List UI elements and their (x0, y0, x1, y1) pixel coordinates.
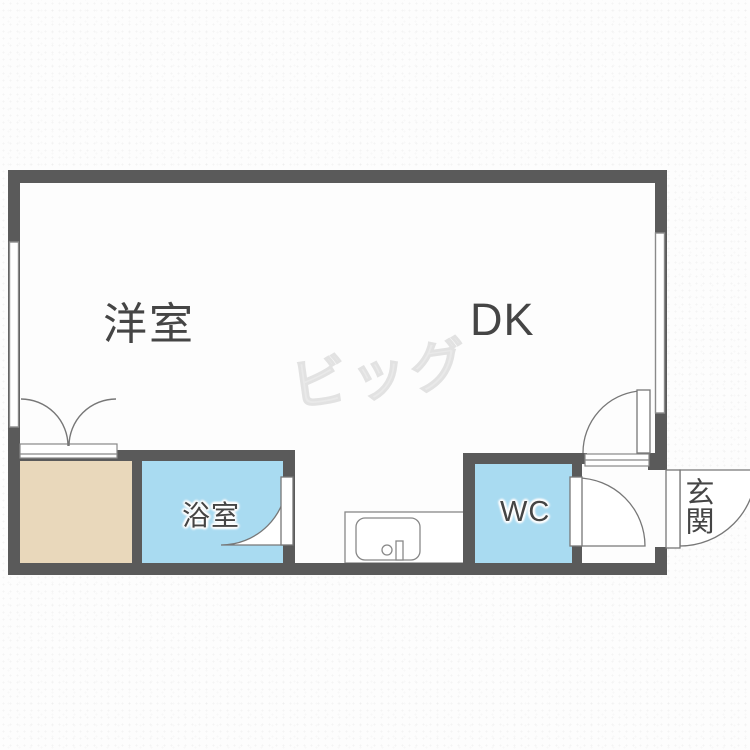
floor-plan-canvas: ビッグ 洋室 DK 浴室 WC 玄関 (0, 0, 750, 750)
bathroom-door-panel (281, 477, 293, 545)
wall-right-lower (655, 547, 667, 575)
wall-closet-bath (132, 450, 142, 563)
wall-bottom (8, 563, 667, 575)
wall-wc-left (463, 453, 475, 563)
entrance-label: 玄関 (682, 477, 712, 535)
wall-top (8, 170, 667, 183)
western-room-label: 洋室 (103, 288, 195, 352)
closet-threshold (20, 444, 117, 458)
window-left (10, 242, 19, 427)
faucet-icon (396, 541, 403, 560)
entrance-door-panel (666, 470, 680, 548)
closet-floor (20, 459, 132, 563)
bathroom-label: 浴室 (182, 494, 240, 534)
wall-corner-block (648, 453, 667, 470)
toilet-label: WC (500, 496, 550, 529)
dining-kitchen-label: DK (470, 294, 535, 346)
drain-icon (382, 545, 392, 555)
wall-interior-right (463, 453, 587, 464)
toilet-door-panel (570, 477, 582, 546)
kitchen-sink-counter (345, 512, 465, 563)
window-right (656, 233, 665, 413)
dk-door-panel (637, 390, 650, 453)
